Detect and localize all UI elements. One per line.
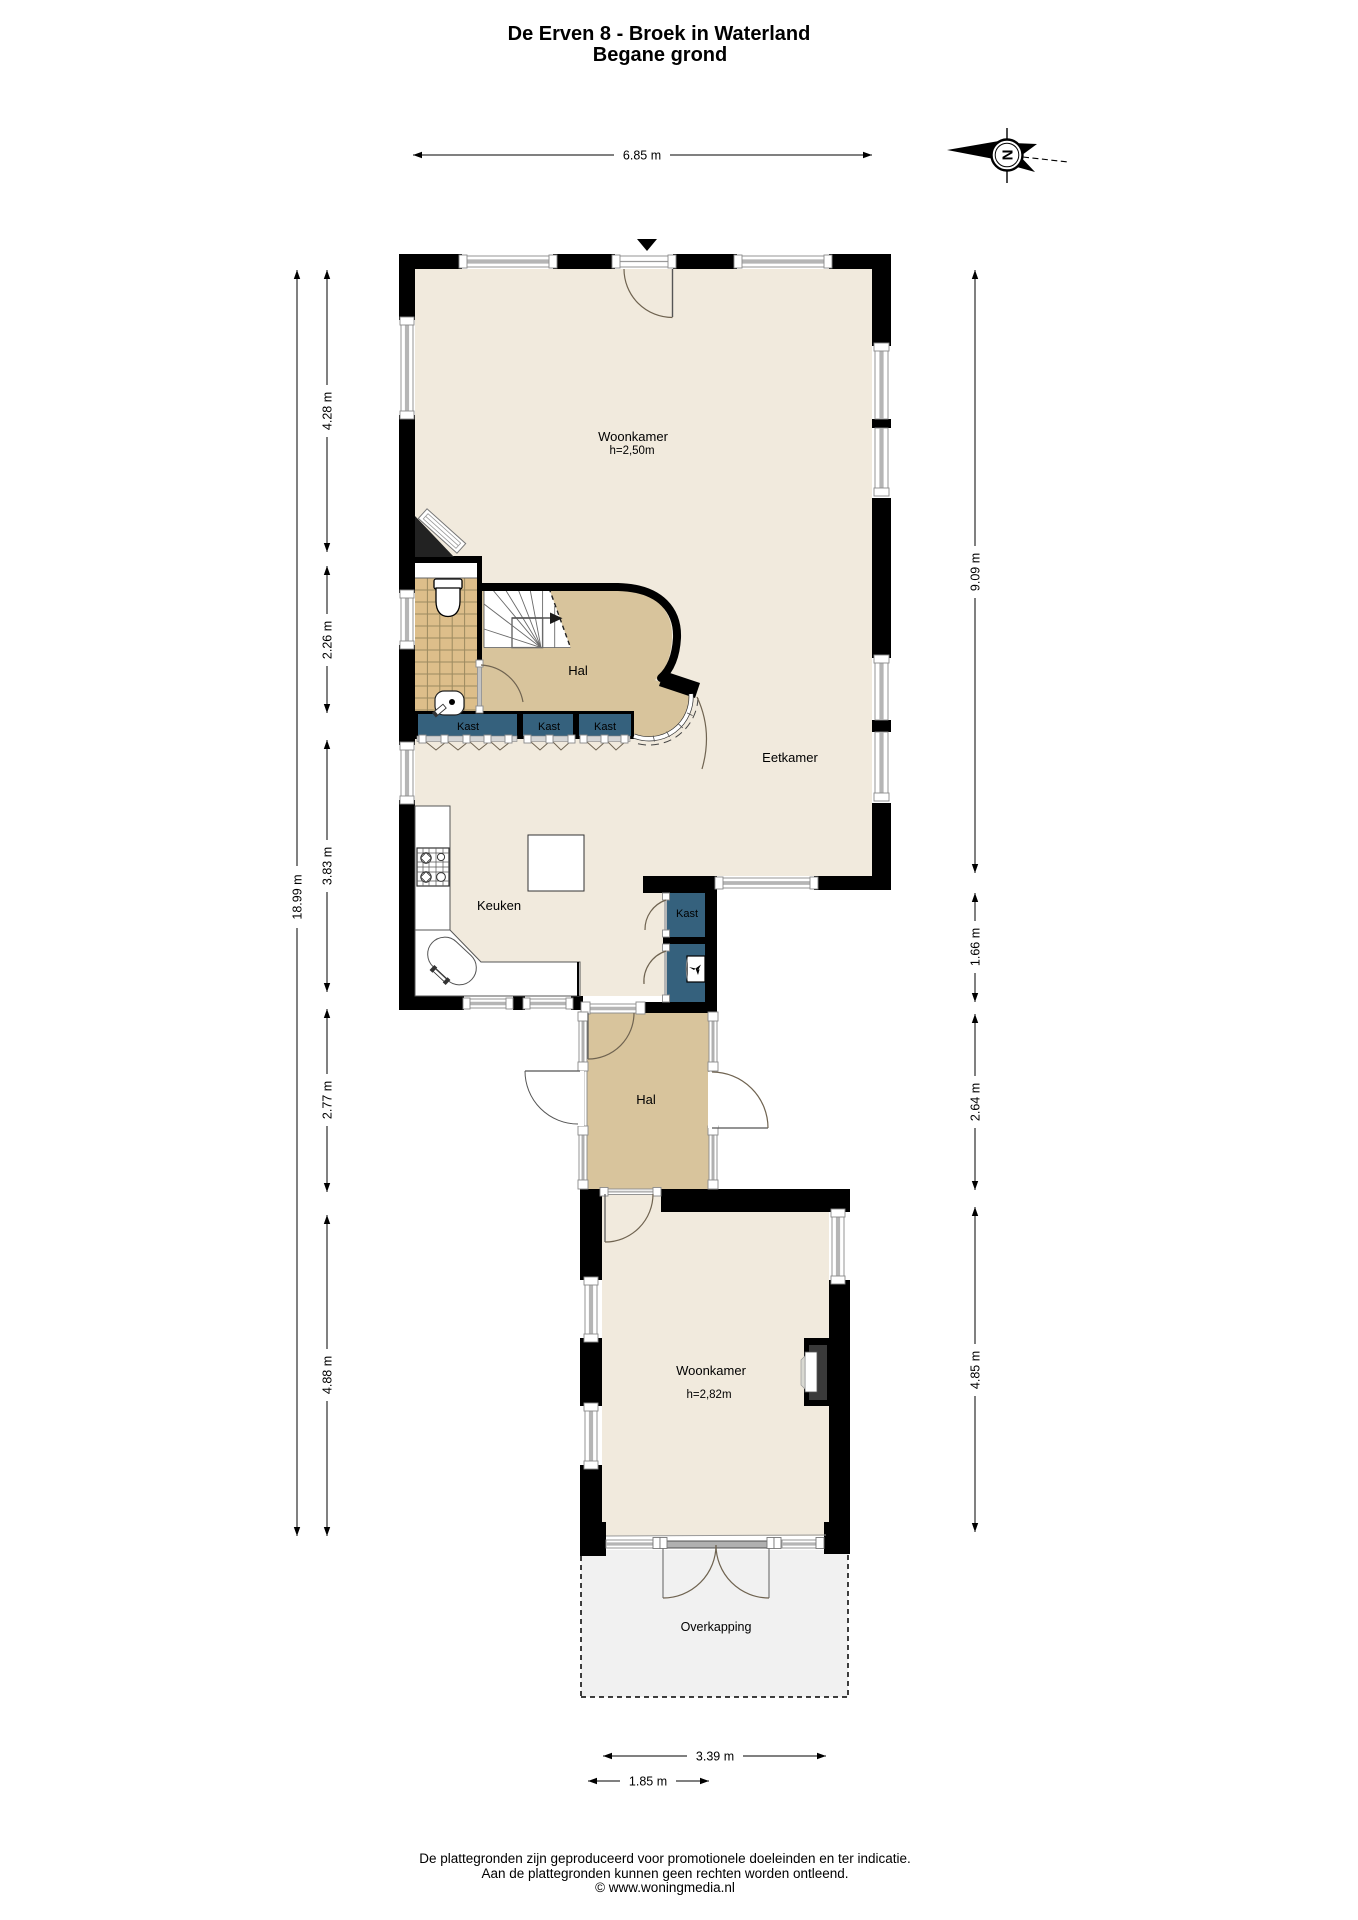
- svg-text:1.66 m: 1.66 m: [969, 928, 983, 966]
- svg-text:Aan de plattegronden kunnen ge: Aan de plattegronden kunnen geen rechten…: [481, 1866, 848, 1881]
- svg-text:N: N: [1000, 150, 1017, 161]
- svg-text:De plattegronden zijn geproduc: De plattegronden zijn geproduceerd voor …: [419, 1851, 911, 1866]
- svg-text:2.64 m: 2.64 m: [969, 1083, 983, 1121]
- svg-text:Overkapping: Overkapping: [681, 1620, 752, 1634]
- svg-text:Kast: Kast: [538, 721, 560, 733]
- svg-text:h=2,50m: h=2,50m: [609, 445, 654, 457]
- svg-text:3.39 m: 3.39 m: [696, 1750, 734, 1764]
- svg-text:Woonkamer: Woonkamer: [598, 429, 669, 444]
- svg-text:6.85 m: 6.85 m: [623, 149, 661, 163]
- svg-text:Kast: Kast: [676, 908, 698, 920]
- svg-text:4.88 m: 4.88 m: [321, 1356, 335, 1394]
- svg-text:2.26 m: 2.26 m: [321, 621, 335, 659]
- svg-text:2.77 m: 2.77 m: [321, 1081, 335, 1119]
- svg-text:Hal: Hal: [568, 663, 588, 678]
- svg-text:Eetkamer: Eetkamer: [762, 750, 818, 765]
- svg-text:Keuken: Keuken: [477, 898, 521, 913]
- svg-text:4.85 m: 4.85 m: [969, 1351, 983, 1389]
- svg-text:Begane grond: Begane grond: [593, 44, 727, 66]
- svg-text:© www.woningmedia.nl: © www.woningmedia.nl: [595, 1880, 735, 1895]
- svg-text:4.28 m: 4.28 m: [321, 392, 335, 430]
- svg-text:Kast: Kast: [594, 721, 616, 733]
- svg-text:Kast: Kast: [457, 721, 479, 733]
- svg-text:De Erven 8 - Broek in Waterlan: De Erven 8 - Broek in Waterland: [508, 23, 811, 45]
- svg-text:Hal: Hal: [636, 1092, 656, 1107]
- svg-text:1.85 m: 1.85 m: [629, 1775, 667, 1789]
- svg-text:h=2,82m: h=2,82m: [686, 1389, 731, 1401]
- svg-text:3.83 m: 3.83 m: [321, 847, 335, 885]
- svg-text:9.09 m: 9.09 m: [969, 553, 983, 591]
- svg-text:Woonkamer: Woonkamer: [676, 1363, 747, 1378]
- svg-text:18.99 m: 18.99 m: [291, 874, 305, 919]
